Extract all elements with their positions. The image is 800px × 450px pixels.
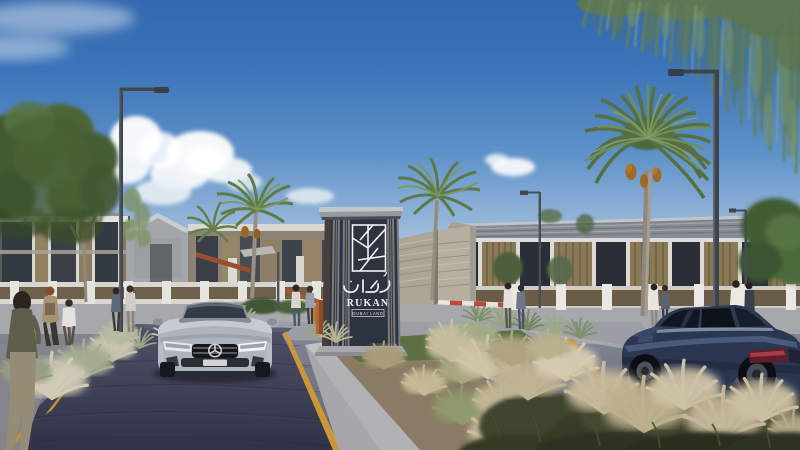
svg-text:RUKAN: RUKAN: [347, 298, 390, 309]
svg-text:DUBAI LAND: DUBAI LAND: [352, 311, 383, 316]
